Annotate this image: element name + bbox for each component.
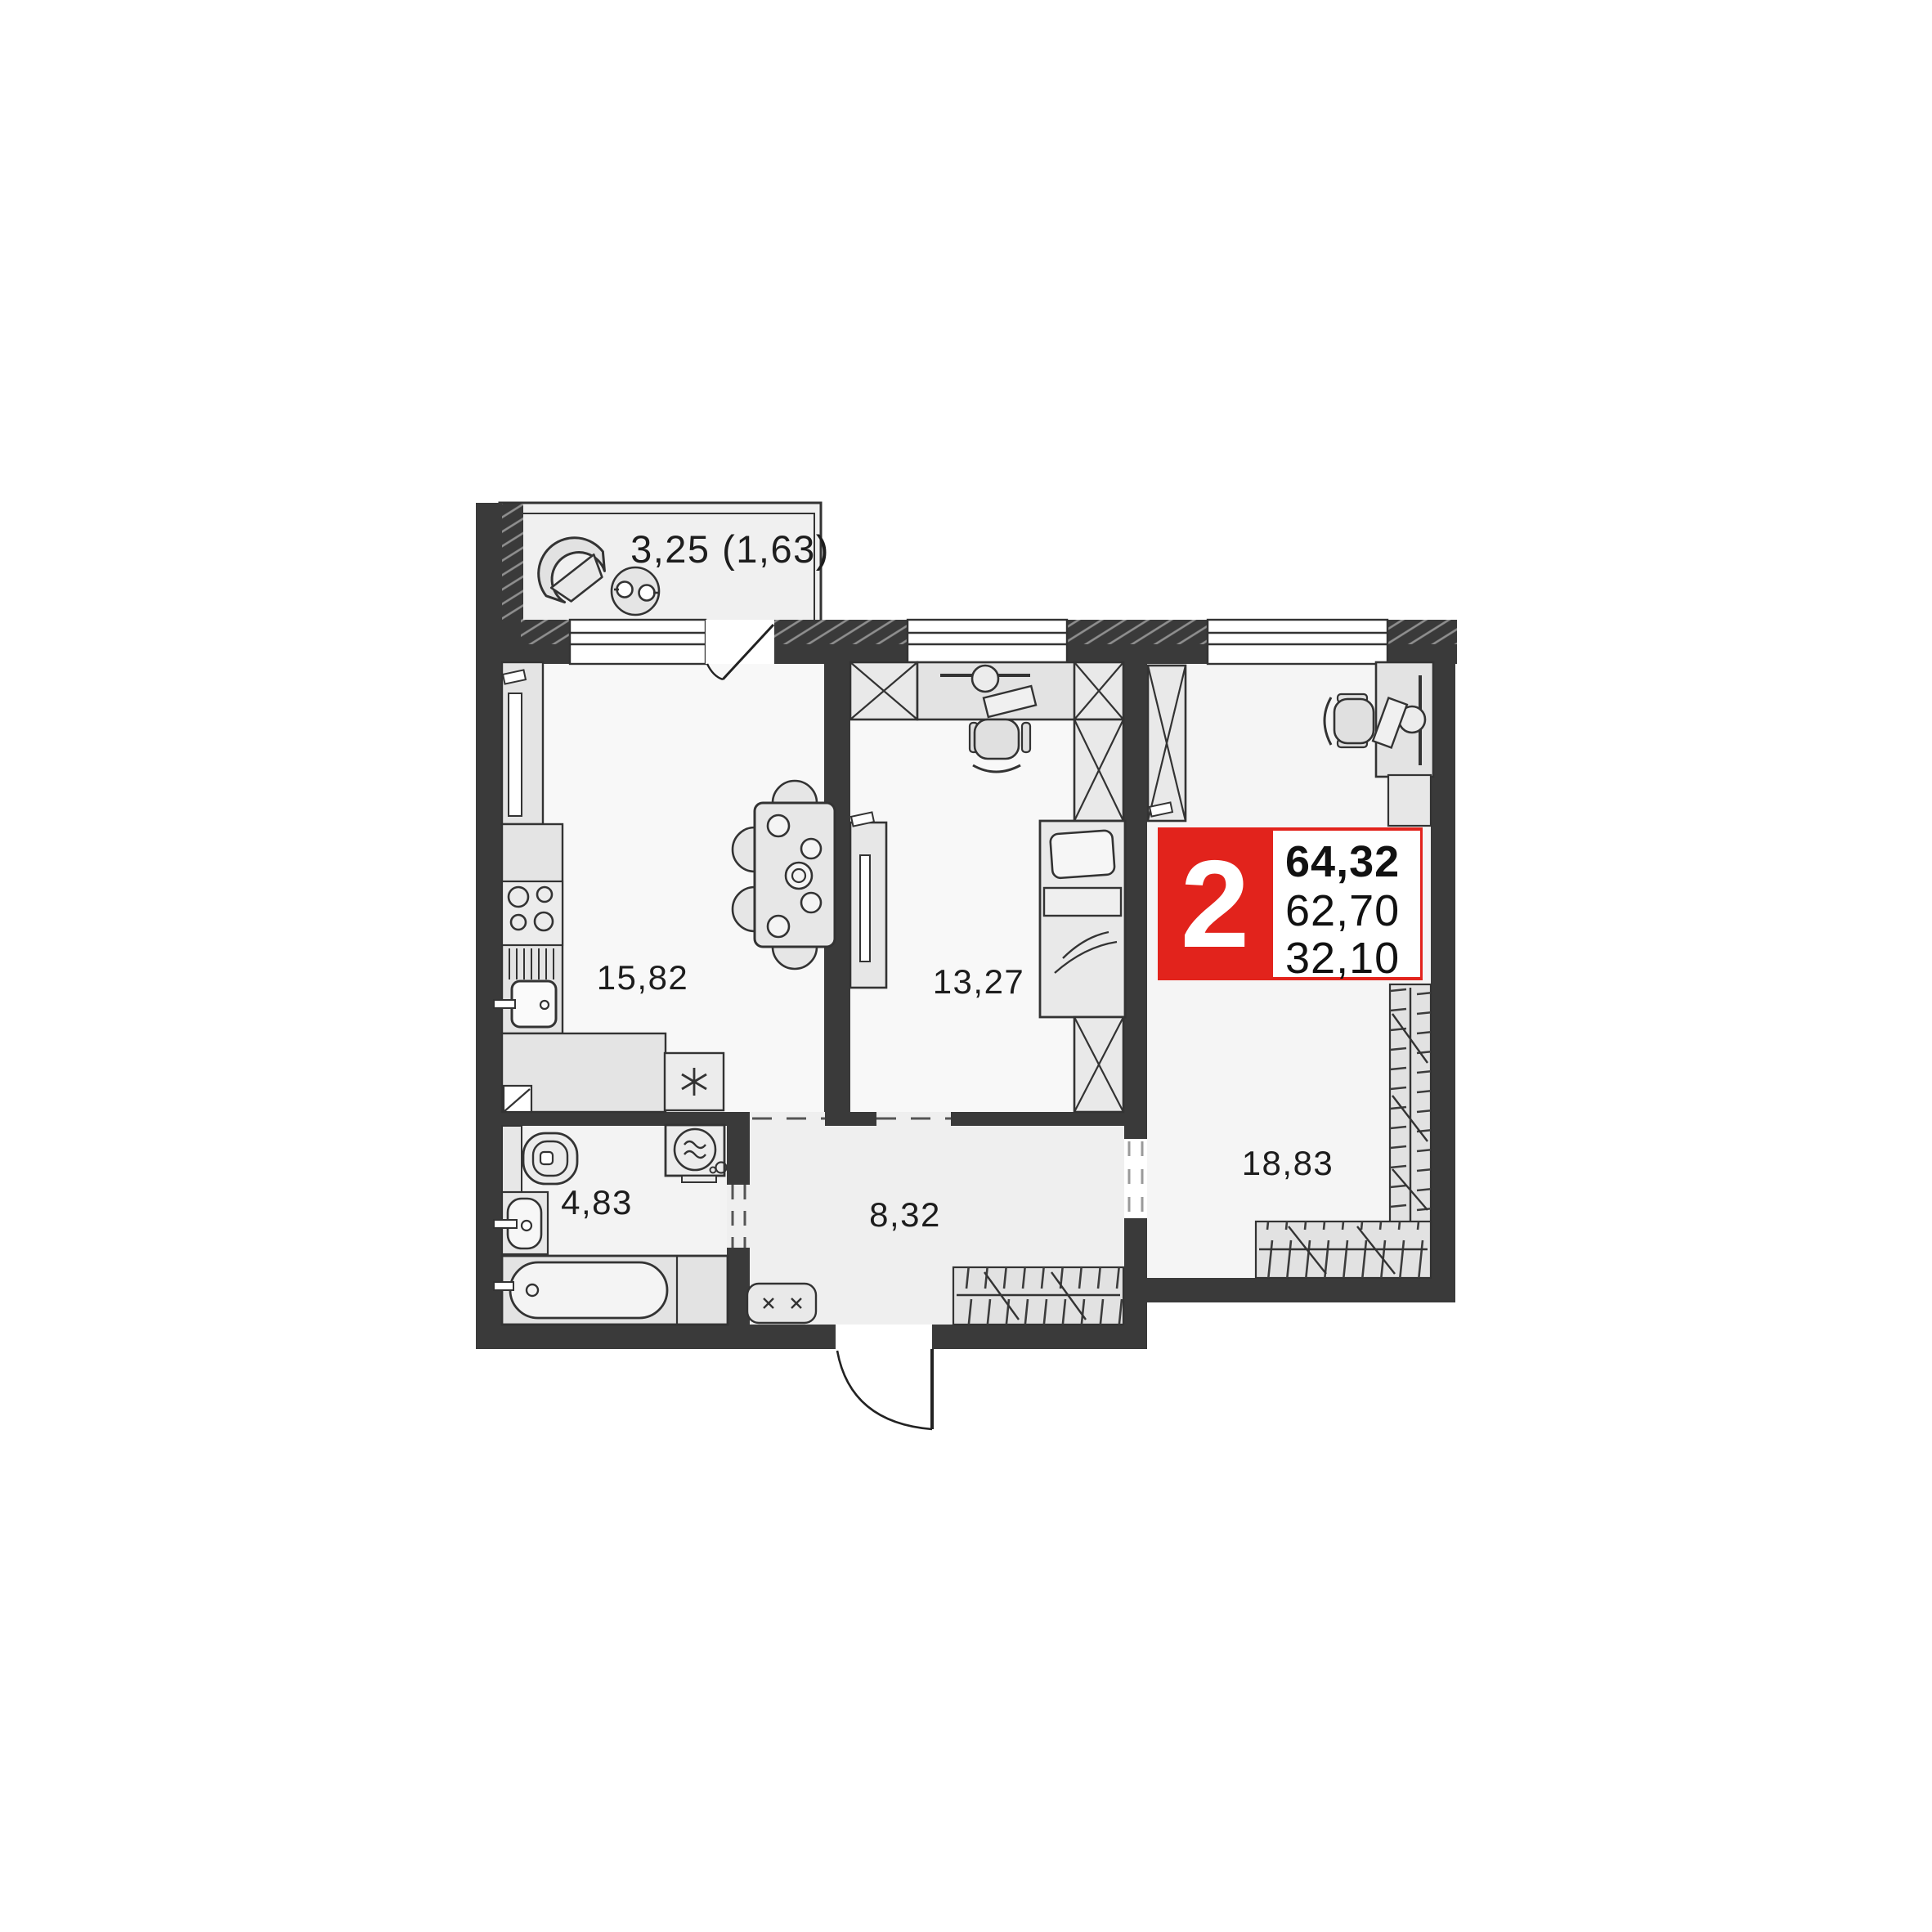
wall-bottom-living (1124, 1278, 1455, 1302)
wall-hall-living-lower (1124, 1218, 1147, 1349)
wall-stub-kitchen (825, 1112, 876, 1126)
balcony-coffee-table (612, 567, 659, 615)
entrance-door (836, 1325, 932, 1429)
living-wardrobe-left (1148, 666, 1186, 821)
living-area-label: 18,83 (1242, 1144, 1334, 1182)
wall-bedroom-living (1124, 664, 1147, 1139)
bedroom-window (908, 620, 1067, 664)
badge-area-without-balcony: 62,70 (1285, 886, 1400, 935)
badge-area-total: 64,32 (1285, 837, 1400, 886)
kitchen-window (570, 620, 706, 664)
bathtub (494, 1256, 728, 1325)
living-cabinet (1388, 775, 1431, 826)
bedroom-desk (917, 662, 1076, 719)
bed (1040, 821, 1125, 1017)
toilet (523, 1133, 577, 1184)
wall-bathroom-right-lower (727, 1248, 750, 1325)
wall-bathroom-right-upper (727, 1126, 750, 1185)
washing-machine (666, 1125, 727, 1182)
wall-bottom-middle (932, 1325, 1147, 1349)
balcony-area-label: 3,25 (1,63) (630, 527, 830, 571)
doormat (747, 1284, 816, 1323)
living-wardrobe-bottom (1256, 1222, 1431, 1278)
bedroom-wardrobe-bottom (1074, 1017, 1123, 1112)
hallway-wardrobe (953, 1267, 1123, 1325)
living-room-window (1208, 620, 1387, 664)
floor-plan-drawing: 3,25 (1,63) (0, 0, 1932, 1932)
entrance-opening (836, 1325, 932, 1349)
bathroom-sink (494, 1192, 548, 1254)
wall-bedroom-bottom (951, 1112, 1147, 1126)
bedroom-wardrobe-left (850, 662, 917, 719)
living-wardrobe-right (1390, 984, 1431, 1230)
balcony: 3,25 (1,63) (499, 503, 830, 628)
wall-bottom-left (476, 1325, 836, 1349)
bathroom-area-label: 4,83 (561, 1183, 633, 1222)
bedroom-wardrobe-right (1074, 662, 1123, 821)
entrance-door-swing-arc (837, 1351, 932, 1429)
wall-right (1431, 620, 1455, 1302)
apartment-info-badge: 2 64,32 62,70 32,10 (1158, 827, 1423, 983)
bedroom-area-label: 13,27 (933, 962, 1025, 1001)
kitchen-area-label: 15,82 (597, 958, 689, 997)
hallway-area-label: 8,32 (869, 1195, 941, 1234)
boiler-box (665, 1053, 724, 1110)
living-desk (1373, 662, 1433, 777)
wall-bathroom-top (476, 1112, 750, 1126)
stove (502, 881, 563, 945)
badge-rooms-count: 2 (1181, 835, 1250, 974)
service-hatch (504, 1086, 531, 1112)
floor-plan-page: 3,25 (1,63) (0, 0, 1932, 1932)
bedroom-dresser (850, 823, 886, 988)
badge-area-living: 32,10 (1285, 934, 1400, 983)
